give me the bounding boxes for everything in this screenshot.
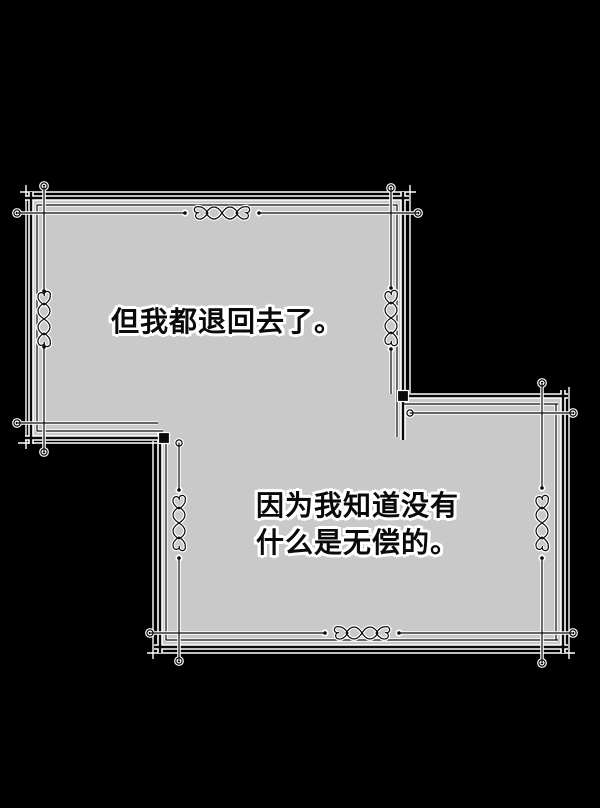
- comic-page: 但我都退回去了。 因为我知道没有 什么是无偿的。: [0, 0, 600, 808]
- narration-text-1-line: 但我都退回去了。: [108, 303, 346, 340]
- narration-text-2-line-2: 什么是无偿的。: [256, 524, 459, 561]
- comic-frame-artwork: [0, 0, 600, 808]
- narration-text-2-line-1: 因为我知道没有: [256, 487, 459, 524]
- narration-text-2: 因为我知道没有 什么是无偿的。: [256, 487, 459, 561]
- narration-text-1: 但我都退回去了。: [108, 303, 346, 340]
